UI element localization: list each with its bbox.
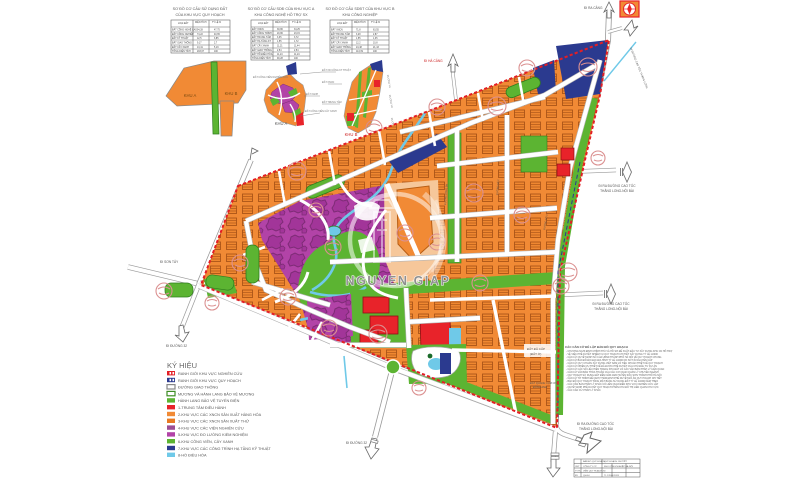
svg-text:12,2: 12,2	[356, 43, 361, 45]
svg-text:71,8: 71,8	[356, 30, 361, 32]
svg-text:1,35: 1,35	[373, 38, 378, 40]
svg-text:TL 1/2000: TL 1/2000	[604, 475, 615, 477]
svg-text:ĐI ĐƯỜNG 32: ĐI ĐƯỜNG 32	[346, 440, 367, 445]
svg-text:5,19: 5,19	[214, 47, 219, 49]
svg-text:7-KHU VỰC CÁC CÔNG TRÌNH HẠ TẦ: 7-KHU VỰC CÁC CÔNG TRÌNH HẠ TẦNG KỸ THUẬ…	[178, 446, 271, 451]
svg-text:9,17: 9,17	[197, 43, 202, 45]
svg-text:1,55: 1,55	[277, 41, 282, 43]
svg-text:10,8: 10,8	[373, 43, 378, 45]
svg-text:TVTK: TVTK	[575, 471, 581, 473]
svg-text:QH-04: QH-04	[583, 475, 590, 477]
svg-text:5-KHU VỰC ĐO LƯỜNG KIỂM NGHIỆM: 5-KHU VỰC ĐO LƯỜNG KIỂM NGHIỆM	[178, 432, 248, 437]
svg-text:ĐẤT XANH: ĐẤT XANH	[306, 93, 318, 96]
svg-text:ĐẤT CÔNG TRÌNH: ĐẤT CÔNG TRÌNH	[252, 32, 272, 35]
svg-text:8-HỒ ĐIỀU HÒA: 8-HỒ ĐIỀU HÒA	[178, 453, 207, 458]
svg-text:CĐT: CĐT	[575, 466, 580, 468]
svg-text:ĐẤT KỸ THUẬT: ĐẤT KỸ THUẬT	[331, 37, 348, 40]
svg-text:ĐẤT XNCN: ĐẤT XNCN	[331, 29, 343, 32]
svg-text:1,72: 1,72	[294, 41, 299, 43]
svg-text:21,43: 21,43	[373, 47, 379, 49]
svg-text:KHU CÔNG NGHỆ HỖ TRỢ SX: KHU CÔNG NGHỆ HỖ TRỢ SX	[254, 12, 308, 17]
svg-text:QUY HOẠCH CHI TIẾT: QUY HOẠCH CHI TIẾT	[604, 460, 628, 463]
svg-text:KHU B: KHU B	[225, 91, 238, 96]
svg-text:TỔNG DIỆN TÍCH: TỔNG DIỆN TÍCH	[252, 57, 271, 60]
svg-text:- CÁC CĂN CỨ PHÁP LÝ KHÁC: - CÁC CĂN CỨ PHÁP LÝ KHÁC	[566, 389, 601, 392]
svg-text:RANH GIỚI KHU VỰC QUY HOẠCH: RANH GIỚI KHU VỰC QUY HOẠCH	[178, 378, 241, 383]
svg-text:ĐẤT CÂY XANH: ĐẤT CÂY XANH	[331, 42, 348, 45]
svg-text:12,5: 12,5	[197, 38, 202, 40]
svg-text:13,41: 13,41	[197, 47, 203, 49]
svg-text:TỶ LỆ %: TỶ LỆ %	[292, 21, 301, 24]
svg-text:VIỆN QUY HOẠCH XD: VIỆN QUY HOẠCH XD	[583, 470, 606, 473]
svg-text:(ĐẤT Ở): (ĐẤT Ở)	[530, 351, 541, 356]
svg-text:ĐẤT HỒ ĐIỀU HÒA: ĐẤT HỒ ĐIỀU HÒA	[252, 53, 273, 56]
svg-text:ĐẤT TRUNG TÂM: ĐẤT TRUNG TÂM	[252, 36, 271, 39]
svg-text:2,87: 2,87	[373, 34, 378, 36]
svg-text:3,35: 3,35	[277, 37, 282, 39]
svg-text:4-KHU VỰC CÁC VIỆN NGHIÊN CỨU: 4-KHU VỰC CÁC VIỆN NGHIÊN CỨU	[178, 425, 244, 430]
svg-text:ĐẤT CÔNG NGHỆ CAO: ĐẤT CÔNG NGHỆ CAO	[172, 29, 197, 32]
svg-text:KHU CÔNG NGHIỆP: KHU CÔNG NGHIỆP	[342, 12, 378, 17]
svg-text:THĂNG LONG-NỘI BÀI: THĂNG LONG-NỘI BÀI	[579, 426, 613, 431]
svg-text:63,55: 63,55	[373, 30, 379, 32]
svg-text:6-KHU CÔNG VIÊN, CÂY XANH: 6-KHU CÔNG VIÊN, CÂY XANH	[178, 439, 233, 444]
svg-text:HÀNH LANG BẢO VỆ TUYẾN ĐIỆN: HÀNH LANG BẢO VỆ TUYẾN ĐIỆN	[178, 398, 240, 403]
svg-text:ĐI HÀ CẢNG: ĐI HÀ CẢNG	[424, 58, 443, 63]
svg-text:ĐẤT TRUNG TÂM: ĐẤT TRUNG TÂM	[322, 101, 342, 104]
svg-text:LOẠI ĐẤT: LOẠI ĐẤT	[337, 22, 348, 25]
svg-text:34,25: 34,25	[294, 29, 300, 31]
svg-text:DIỆN TÍCH: DIỆN TÍCH	[354, 21, 366, 24]
svg-text:ĐẤT XNCN: ĐẤT XNCN	[322, 81, 334, 84]
svg-text:24,48: 24,48	[356, 47, 362, 49]
svg-text:MƯƠNG VÀ HÀNH LANG BẢO VỆ MƯƠN: MƯƠNG VÀ HÀNH LANG BẢO VỆ MƯƠNG	[178, 391, 254, 396]
svg-text:ĐẤT KỸ THUẬT: ĐẤT KỸ THUẬT	[172, 37, 189, 40]
svg-text:90,28: 90,28	[277, 58, 283, 60]
svg-text:KHU B: KHU B	[345, 132, 358, 137]
svg-text:ĐẤT GIAO THÔNG: ĐẤT GIAO THÔNG	[172, 42, 192, 45]
svg-text:KÝ HIỆU: KÝ HIỆU	[167, 361, 197, 370]
svg-text:DIỆN TÍCH: DIỆN TÍCH	[195, 21, 207, 24]
svg-text:KHU A: KHU A	[184, 93, 197, 98]
svg-text:ĐẤT XD CÔNG KT THUẬT: ĐẤT XD CÔNG KT THUẬT	[322, 69, 351, 72]
svg-text:11,24: 11,24	[277, 54, 283, 56]
svg-text:TỶ LỆ %: TỶ LỆ %	[371, 21, 380, 24]
svg-text:ĐẤT CÂY XANH: ĐẤT CÂY XANH	[172, 46, 189, 49]
svg-text:20,86: 20,86	[277, 33, 283, 35]
svg-text:2-KHU VỰC CÁC XNCN SẢN XUẤT HÀ: 2-KHU VỰC CÁC XNCN SẢN XUẤT HÀNG HÓA	[178, 412, 262, 417]
svg-text:11,24: 11,24	[294, 54, 300, 56]
svg-text:2019: 2019	[614, 475, 620, 477]
svg-text:11,21: 11,21	[277, 46, 283, 48]
svg-text:CÔNG TY CP: CÔNG TY CP	[583, 465, 597, 468]
svg-text:ĐƯỜNG GIAO THÔNG: ĐƯỜNG GIAO THÔNG	[178, 385, 218, 390]
svg-text:ĐI RA ĐƯỜNG CAO TỐC: ĐI RA ĐƯỜNG CAO TỐC	[598, 183, 636, 188]
svg-text:ĐI RA ĐƯỜNG CAO TỐC: ĐI RA ĐƯỜNG CAO TỐC	[592, 301, 630, 306]
svg-text:NGUYEN GIAP: NGUYEN GIAP	[345, 274, 450, 288]
svg-text:LOẠI ĐẤT: LOẠI ĐẤT	[258, 22, 269, 25]
svg-text:3,28: 3,28	[356, 34, 361, 36]
svg-text:ĐẤT HẠ TẦNG KT: ĐẤT HẠ TẦNG KT	[252, 40, 272, 43]
svg-text:ĐI SƠN TÂY: ĐI SƠN TÂY	[160, 260, 179, 264]
svg-text:ĐẤT CÔNG NGHIỆP: ĐẤT CÔNG NGHIỆP	[172, 33, 194, 36]
svg-text:BẢN ĐỒ QUY HOẠCH: BẢN ĐỒ QUY HOẠCH	[583, 460, 606, 463]
svg-text:203,67: 203,67	[197, 51, 205, 53]
svg-text:ĐI ĐƯỜNG 32: ĐI ĐƯỜNG 32	[166, 343, 187, 348]
svg-text:40,65: 40,65	[214, 34, 220, 36]
svg-text:RANH GIỚI KHU VỰC NGHIÊN CỨU: RANH GIỚI KHU VỰC NGHIÊN CỨU	[178, 371, 243, 376]
svg-text:ĐẤT ĐÃ CẤP: ĐẤT ĐÃ CẤP	[527, 346, 545, 351]
svg-text:THĂNG LONG-NỘI BÀI: THĂNG LONG-NỘI BÀI	[600, 188, 634, 193]
svg-text:ĐẤT XNCN: ĐẤT XNCN	[252, 28, 264, 31]
svg-text:ĐI RA ĐƯỜNG CAO TỐC: ĐI RA ĐƯỜNG CAO TỐC	[577, 421, 615, 426]
svg-text:47,75: 47,75	[214, 30, 220, 32]
svg-text:TỔNG DIỆN TÍCH: TỔNG DIỆN TÍCH	[331, 50, 350, 53]
svg-text:ĐI RA CẢNG: ĐI RA CẢNG	[584, 5, 603, 10]
svg-text:DIỆN TÍCH: DIỆN TÍCH	[275, 21, 287, 24]
svg-text:3,85: 3,85	[214, 38, 219, 40]
svg-text:3,72: 3,72	[294, 37, 299, 39]
svg-text:TỔNG DIỆN TÍCH: TỔNG DIỆN TÍCH	[172, 50, 191, 53]
svg-text:94,28: 94,28	[197, 30, 203, 32]
svg-text:11,44: 11,44	[294, 46, 300, 48]
svg-text:74,22: 74,22	[197, 34, 203, 36]
svg-text:CỦA KHU VỰC QUY HOẠCH: CỦA KHU VỰC QUY HOẠCH	[176, 12, 225, 17]
svg-text:113,39: 113,39	[356, 51, 364, 53]
svg-text:LOẠI ĐẤT: LOẠI ĐẤT	[178, 22, 189, 25]
svg-text:1,55: 1,55	[356, 38, 361, 40]
svg-text:ĐẤT GIAO THÔNG: ĐẤT GIAO THÔNG	[252, 49, 272, 52]
svg-text:ĐẤT CÔNG VIÊN CÂY XANH: ĐẤT CÔNG VIÊN CÂY XANH	[305, 110, 337, 113]
svg-text:SƠ ĐỒ CƠ CẤU SDĐ CỦA KHU VỰC A: SƠ ĐỒ CƠ CẤU SDĐ CỦA KHU VỰC A	[248, 6, 315, 11]
svg-text:ĐẤT GIAO THÔNG: ĐẤT GIAO THÔNG	[331, 46, 351, 49]
svg-text:CÁC CĂN CỨ ĐỂ LẬP BẢN ĐỒ QUY H: CÁC CĂN CỨ ĐỂ LẬP BẢN ĐỒ QUY HOẠCH	[565, 344, 628, 349]
svg-text:23,15: 23,15	[294, 33, 300, 35]
svg-text:SƠ ĐỒ CƠ CẤU SỬ DỤNG ĐẤT: SƠ ĐỒ CƠ CẤU SỬ DỤNG ĐẤT	[173, 6, 228, 11]
svg-text:TỶ LỆ %: TỶ LỆ %	[212, 21, 221, 24]
svg-text:3-KHU VỰC CÁC XNCN SẢN XUẤT TH: 3-KHU VỰC CÁC XNCN SẢN XUẤT THỬ	[178, 419, 250, 424]
svg-text:2,54: 2,54	[277, 50, 282, 52]
svg-text:ĐẤT CÂY XANH: ĐẤT CÂY XANH	[252, 45, 269, 48]
svg-text:1-TRUNG TÂM ĐIỀU HÀNH: 1-TRUNG TÂM ĐIỀU HÀNH	[178, 405, 226, 410]
svg-text:KHU A: KHU A	[275, 121, 288, 126]
svg-text:KHU CÔNG NGHIỆP HÀ NỘI: KHU CÔNG NGHIỆP HÀ NỘI	[604, 465, 633, 468]
svg-text:ĐẤT CÔNG VIÊN NGHIÊN CỨU: ĐẤT CÔNG VIÊN NGHIÊN CỨU	[253, 76, 288, 79]
svg-text:SƠ ĐỒ CƠ CẤU SDĐT CỦA KHU VỰC: SƠ ĐỒ CƠ CẤU SDĐT CỦA KHU VỰC B	[325, 6, 395, 11]
svg-text:ĐẤT TRUNG TÂM: ĐẤT TRUNG TÂM	[331, 33, 350, 36]
svg-text:THĂNG LONG-NỘI BÀI: THĂNG LONG-NỘI BÀI	[594, 306, 628, 311]
svg-text:30,86: 30,86	[277, 29, 283, 31]
svg-text:2,54: 2,54	[294, 50, 299, 52]
